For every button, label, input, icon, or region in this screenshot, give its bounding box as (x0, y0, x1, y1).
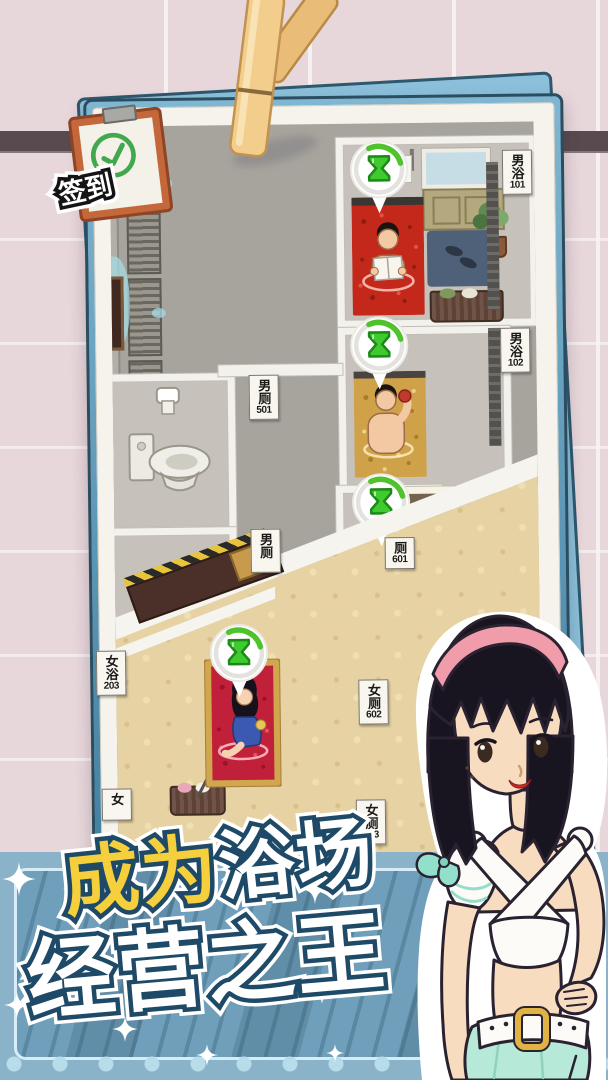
sparkle-icon (2, 862, 36, 896)
sparkle-icon (4, 992, 30, 1018)
clothespin (224, 0, 354, 182)
storage-door (110, 276, 125, 351)
check-in-button[interactable]: 签到 签到 签到 (45, 99, 189, 238)
game-screenshot: 男浴 101 男浴 102 男厕 501 男厕 厕 601 女浴 203 (0, 0, 608, 1080)
water-puddle (152, 308, 166, 318)
sparkle-icon (196, 1044, 218, 1066)
wall-segment (218, 364, 342, 377)
bath-mat (427, 230, 494, 287)
toilet-fixture (117, 373, 223, 504)
wall-radiator (488, 328, 501, 446)
sparkle-icon (326, 1044, 344, 1062)
wall-radiator (486, 162, 500, 310)
mascot-girl-character (388, 610, 608, 1080)
wall-mirror (422, 148, 490, 189)
hourglass-timer-bubble[interactable] (339, 313, 420, 394)
hourglass-timer-bubble[interactable] (199, 621, 280, 702)
